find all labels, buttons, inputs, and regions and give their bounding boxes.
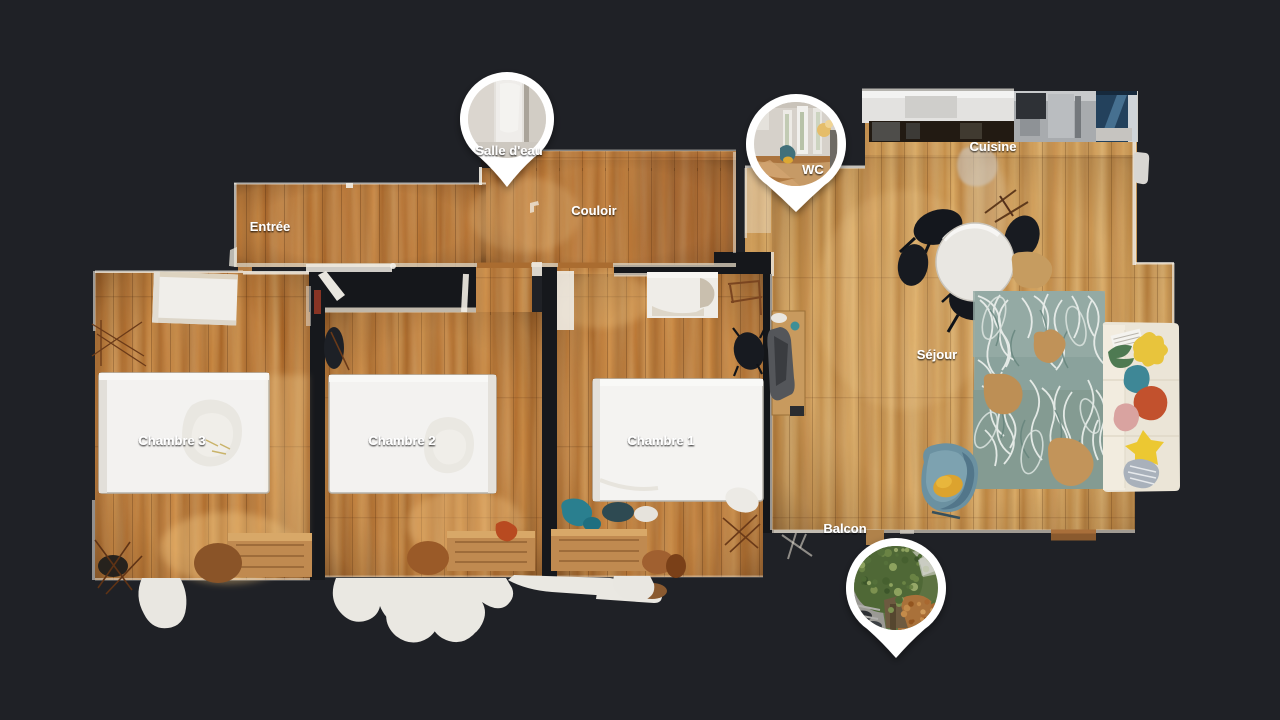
svg-text:Balcon: Balcon [823,521,866,536]
svg-text:Cuisine: Cuisine [970,139,1017,154]
svg-text:Couloir: Couloir [571,203,617,218]
svg-text:Salle d'eau: Salle d'eau [475,143,542,158]
svg-text:Entrée: Entrée [250,219,290,234]
svg-text:WC: WC [802,162,824,177]
svg-text:Chambre 3: Chambre 3 [138,433,205,448]
svg-text:Chambre 2: Chambre 2 [368,433,435,448]
svg-text:Chambre 1: Chambre 1 [627,433,694,448]
svg-text:Séjour: Séjour [917,347,957,362]
